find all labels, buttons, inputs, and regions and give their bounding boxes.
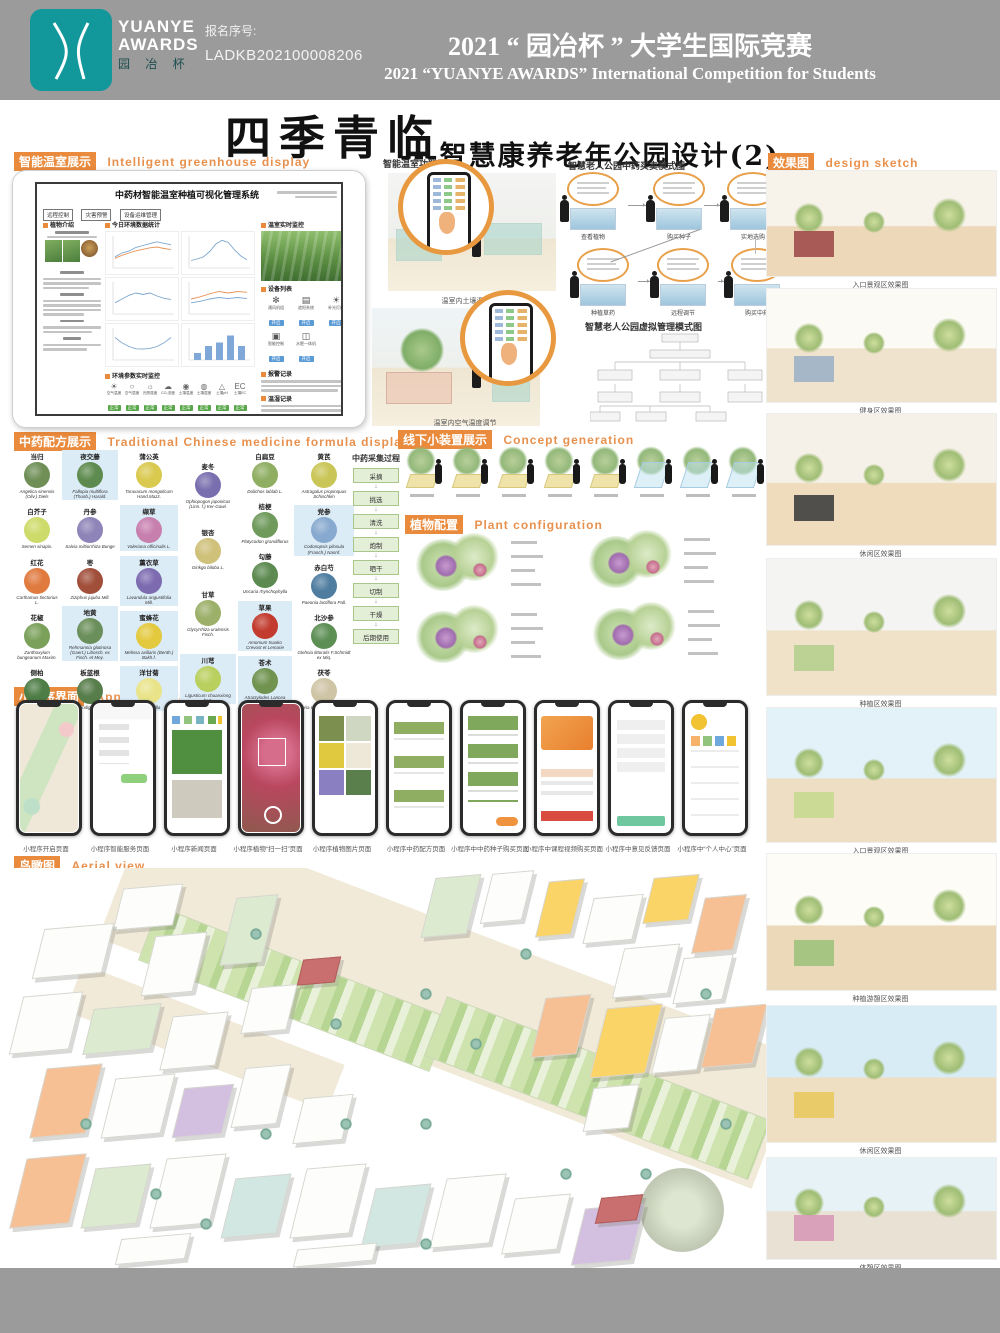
person-figure: [619, 464, 626, 484]
line-chart-2: [181, 231, 255, 275]
plant-photo: [77, 618, 103, 644]
plant-photo: [252, 668, 278, 694]
render-structure: [794, 356, 834, 382]
thought-bubble: [653, 172, 705, 206]
render-illustration: [766, 170, 997, 277]
phone-mockup-chat: [90, 700, 156, 836]
plant-card: 草果Amomum tsaoko Crevost et Lemarie: [238, 601, 292, 651]
person-figure: [711, 464, 718, 484]
phone-mockup-pay: [534, 700, 600, 836]
plant-card: 银杏Ginkgo biloba L.: [180, 526, 236, 571]
render-illustration: [766, 288, 997, 403]
plant-name-cn: 蜜蜂花: [122, 612, 176, 622]
phone-screen-profile: [686, 704, 744, 832]
phone-callout: [398, 159, 494, 255]
env-monitor-title: 环境参数实时监控: [112, 374, 160, 380]
bar-chart: [181, 323, 255, 367]
phone-mockup-news: [164, 700, 230, 836]
tree-icon: [420, 1118, 432, 1130]
concept-vignette: [446, 446, 490, 512]
tree-icon: [590, 446, 620, 476]
render-structure: [794, 940, 834, 966]
plant-card: 红花Carthamus tinctorius L.: [14, 556, 60, 606]
device-on-button: 开启: [299, 356, 314, 362]
plant-photo: [63, 240, 80, 262]
logo-wordmark: YUANYE AWARDS 园 冶 杯: [118, 18, 199, 70]
thought-bubble: [657, 248, 709, 282]
concept-vignette: [492, 446, 536, 512]
plant-photo: [77, 517, 103, 543]
plant-photo: [24, 568, 50, 594]
competition-poster: YUANYE AWARDS 园 冶 杯 报名序号: LADKB202100008…: [0, 0, 1000, 1333]
plant-cluster: [588, 530, 748, 596]
plant-name-cn: 白芥子: [16, 506, 58, 516]
plant-name-cn: 茯苓: [296, 667, 352, 677]
vignette-caption-placeholder: [732, 494, 756, 497]
vignette-caption-placeholder: [686, 494, 710, 497]
trade-step-caption: 远程调节: [652, 308, 714, 317]
building-block: [297, 956, 341, 985]
building-block: [81, 1164, 152, 1229]
plant-photo: [45, 240, 62, 262]
tree-icon: [250, 928, 262, 940]
dashboard-datetime: [277, 189, 337, 200]
elder-figure: [720, 200, 729, 222]
elder-figure: [724, 276, 733, 298]
plant-card: 苍术Atractylodes Lancea (Thunb.) DC.: [238, 656, 292, 706]
building-block: [172, 1084, 234, 1138]
device-on-button: 开启: [269, 320, 284, 326]
phone-screen-seeds: [464, 704, 522, 832]
concept-vignette: [676, 446, 720, 512]
harvest-step: 干燥: [353, 606, 399, 621]
plant-name-latin: Ziziphus jujuba Mill.: [64, 595, 116, 600]
status-normal-badge: 正常: [108, 405, 121, 411]
phone-mockup-seeds: [460, 700, 526, 836]
building-block: [691, 894, 747, 954]
status-normal-badge: 正常: [180, 405, 193, 411]
dashboard-title: 中药材智能温室种植可视化管理系统: [97, 188, 277, 201]
tree-icon: [720, 1118, 732, 1130]
device-item: ☀补光灯组开启: [321, 295, 343, 329]
plant-photo: [195, 600, 221, 626]
building-block: [115, 1233, 191, 1265]
concept-vignette: [400, 446, 444, 512]
plant-name-cn: 夜交藤: [64, 451, 116, 461]
plant-name-latin: Fallopia multiflora (Thunb.) Harald.: [64, 489, 116, 499]
render-card: 种植区效果图: [766, 558, 995, 709]
plant-intro-panel: 植物介绍: [43, 218, 101, 353]
render-card: 健身区效果图: [766, 288, 995, 416]
plant-photo: [252, 562, 278, 588]
tree-icon: [420, 988, 432, 1000]
plant-name-cn: 桔梗: [240, 501, 290, 511]
tcm-plants-grid: 当归Angelica sinensis (Oliv.) Diels白芥子Seme…: [14, 450, 354, 686]
plant-photo: [195, 472, 221, 498]
土壤湿度-icon: ◍: [195, 382, 213, 391]
building-block: [421, 874, 482, 938]
plant-name-latin: Lavandula angustifolia Mill.: [122, 595, 176, 605]
elder-figure: [650, 276, 659, 298]
plant-column: 白扁豆Dolichos lablab L.桔梗Platycodon grandi…: [238, 450, 292, 711]
plant-column: 麦冬Ophiopogon japonicus (Linn. f.) Ker-Ga…: [180, 460, 236, 720]
header-band: YUANYE AWARDS 园 冶 杯 报名序号: LADKB202100008…: [0, 0, 1000, 100]
plant-name-cn: 地黄: [64, 607, 116, 617]
render-caption: 休闲区效果图: [766, 1146, 995, 1156]
harvest-step: 晒干: [353, 560, 399, 575]
render-card: 种植游憩区效果图: [766, 853, 995, 1004]
render-card: 休闲区效果图: [766, 413, 995, 559]
env-param: ☼光照强度正常: [141, 382, 159, 414]
plant-name-cn: 侧柏: [16, 667, 58, 677]
plant-photo: [311, 517, 337, 543]
thought-bubble: [577, 248, 629, 282]
scene-illustration: [570, 208, 616, 230]
phone-mockup-map: [16, 700, 82, 836]
plant-cluster: [592, 602, 752, 668]
thought-bubble: [567, 172, 619, 206]
render-card: 体憩区效果图: [766, 1157, 995, 1273]
plant-card: 川芎Ligusticum chuanxiong hort.: [180, 654, 236, 704]
phone-mockup-formula: [386, 700, 452, 836]
plant-name-cn: 丹参: [64, 506, 116, 516]
device-on-button: 开启: [329, 320, 344, 326]
plant-column: 夜交藤Fallopia multiflora (Thunb.) Harald.丹…: [62, 450, 118, 716]
plant-photo: [195, 538, 221, 564]
tree-icon: [150, 1188, 162, 1200]
plant-card: 蒲公英Taraxacum mongolicum Hand.Mazz.: [120, 450, 178, 500]
planter-box: [406, 474, 439, 488]
status-normal-badge: 正常: [162, 405, 175, 411]
status-normal-badge: 正常: [126, 405, 139, 411]
plant-card: 白芥子Semen sinapis.: [14, 505, 60, 550]
trade-step: 查看植物: [562, 172, 624, 241]
plant-name-latin: Rehmannia glutinosa (Gaert.) Libosch. ex…: [64, 645, 116, 661]
plant-name-cn: 草果: [240, 602, 290, 612]
building-block: [612, 944, 680, 999]
土壤pH-icon: △: [213, 382, 231, 391]
building-block: [501, 1194, 571, 1255]
concept-vignette: [722, 446, 766, 512]
monitor-panel: 温室实时监控 设备列表 ✻通风机组开启▤遮阳系统开启☀补光灯组开启▣智能控制开启…: [261, 218, 343, 414]
空气湿度-icon: ○: [123, 382, 141, 391]
render-caption: 种植游憩区效果图: [766, 994, 995, 1004]
status-normal-badge: 正常: [216, 405, 229, 411]
harvest-step: 后期使用: [353, 629, 399, 644]
person-figure: [665, 464, 672, 484]
土壤EC-icon: EC: [231, 382, 249, 391]
tree-icon: [420, 1238, 432, 1250]
planter-box: [452, 474, 485, 488]
building-block: [429, 1173, 506, 1248]
vignette-caption-placeholder: [640, 494, 664, 497]
line-chart-5: [105, 323, 179, 367]
greenhouse-camera-photo: [261, 231, 343, 281]
plant-name-latin: Platycodon grandiflorus: [240, 539, 290, 544]
concept-vignette: [538, 446, 582, 512]
tree-icon: [330, 1018, 342, 1030]
irrigation-icon: ◫: [291, 331, 321, 341]
render-illustration: [766, 1157, 997, 1260]
dashboard-charts: [105, 231, 255, 367]
render-card: 入口景观区效果图: [766, 707, 995, 856]
phone-screen-news: [168, 704, 226, 832]
plant-name-cn: 当归: [16, 451, 58, 461]
phone-mockup-scan: [238, 700, 304, 836]
plant-name-latin: Uncaria rhynchophylla: [240, 589, 290, 594]
status-normal-badge: 正常: [198, 405, 211, 411]
vignette-caption-placeholder: [594, 494, 618, 497]
device-on-button: 开启: [299, 320, 314, 326]
device-item: ✻通风机组开启: [261, 295, 291, 329]
render-illustration: [766, 853, 997, 991]
plant-column: 当归Angelica sinensis (Oliv.) Diels白芥子Seme…: [14, 450, 60, 722]
光照强度-icon: ☼: [141, 382, 159, 391]
env-param: ☁CO₂浓度正常: [159, 382, 177, 414]
plant-card: 桔梗Platycodon grandiflorus: [238, 500, 292, 545]
render-structure: [794, 1215, 834, 1241]
harvest-step: 切制: [353, 583, 399, 598]
render-illustration: [766, 413, 997, 546]
planter-box: [498, 474, 531, 488]
scene-illustration: [660, 284, 706, 306]
person-figure: [527, 464, 534, 484]
vignette-caption-placeholder: [456, 494, 480, 497]
shade-icon: ▤: [291, 295, 321, 305]
plant-name-latin: Ophiopogon japonicus (Linn. f.) Ker-Gawl…: [182, 499, 234, 509]
render-structure: [794, 792, 834, 818]
plant-intro-title: 植物介绍: [50, 223, 74, 229]
section-greenhouse-header: 智能温室展示 Intelligent greenhouse display: [14, 152, 310, 171]
plant-name-cn: 蒲公英: [122, 451, 176, 461]
yuanye-logo-icon: [30, 9, 112, 91]
plant-name-cn: 枣: [64, 557, 116, 567]
plant-name-latin: Valeriana officinalis L.: [122, 544, 176, 549]
records-title: 温湿记录: [268, 397, 292, 403]
空气温度-icon: ☀: [105, 382, 123, 391]
trade-step-caption: 种植草药: [572, 308, 634, 317]
plant-photo: [77, 568, 103, 594]
env-param: ◉土壤温度正常: [177, 382, 195, 414]
trade-step: 种植草药: [572, 248, 634, 317]
plant-name-latin: Salvia miltiorrhiza Bunge: [64, 544, 116, 549]
render-illustration: [766, 1005, 997, 1143]
plant-photo: [311, 623, 337, 649]
tree-icon: [340, 1118, 352, 1130]
tree-icon: [498, 446, 528, 476]
env-param: ◍土壤湿度正常: [195, 382, 213, 414]
device-list: ✻通风机组开启▤遮阳系统开启☀补光灯组开启▣智能控制开启◫水肥一体机开启: [261, 295, 343, 367]
phone-caption: 小程序中“个人中心”页面: [669, 843, 755, 853]
person-figure: [435, 464, 442, 484]
scene-illustration: [580, 284, 626, 306]
render-illustration: [766, 558, 997, 696]
harvest-step: 炮制: [353, 537, 399, 552]
tree-icon: [80, 1118, 92, 1130]
trade-step-caption: 查看植物: [562, 232, 624, 241]
plant-name-latin: Angelica sinensis (Oliv.) Diels: [16, 489, 58, 499]
phone-mockup-profile: [682, 700, 748, 836]
mgmt-tree-diagram: [590, 332, 770, 429]
building-block: [480, 870, 534, 924]
trade-step: 远程调节: [652, 248, 714, 317]
controller-icon: ▣: [261, 331, 291, 341]
phone-screen-map: [20, 704, 78, 832]
plant-name-cn: 缬草: [122, 506, 176, 516]
harvest-step: 挑选: [353, 491, 399, 506]
alarm-title: 报警记录: [268, 372, 292, 378]
render-structure: [794, 1092, 834, 1118]
vignette-caption-placeholder: [410, 494, 434, 497]
greenhouse-dashboard-tablet: 中药材智能温室种植可视化管理系统 远程控制 灾害预警 设备运维管理 植物介绍: [12, 170, 366, 428]
herb-bowl-photo: [81, 240, 98, 257]
status-normal-badge: 正常: [234, 405, 247, 411]
logo-line3: 园 冶 杯: [118, 58, 199, 71]
plant-name-latin: Melissa axillaris (Benth.) Bakh.f.: [122, 650, 176, 660]
building-block: [582, 894, 643, 944]
plant-card: 当归Angelica sinensis (Oliv.) Diels: [14, 450, 60, 500]
render-structure: [794, 645, 834, 671]
plant-name-latin: Amomum tsaoko Crevost et Lemarie: [240, 640, 290, 650]
plant-card: 薰衣草Lavandula angustifolia Mill.: [120, 556, 178, 606]
render-structure: [794, 231, 834, 257]
daily-data-title: 今日环境数据统计: [112, 223, 160, 229]
building-block: [642, 874, 699, 924]
greenhouse-badge: 智能温室展示: [14, 152, 96, 171]
plant-photo: [24, 517, 50, 543]
phone-mockup-feedback: [608, 700, 674, 836]
tree-icon: [640, 1168, 652, 1180]
trade-flow-title: 智慧老人公园中药买卖模式图: [568, 159, 685, 172]
harvest-step: 清洗: [353, 514, 399, 529]
building-block: [293, 1243, 377, 1268]
line-chart-1: [105, 231, 179, 275]
tree-icon: [452, 446, 482, 476]
phone-screen-formula: [390, 704, 448, 832]
phone-screen-scan: [242, 704, 300, 832]
env-param: ☀空气温度正常: [105, 382, 123, 414]
tree-icon: [520, 948, 532, 960]
building-block: [82, 1003, 161, 1055]
tree-icon: [260, 1128, 272, 1140]
planter-box: [544, 474, 577, 488]
plant-card: 夜交藤Fallopia multiflora (Thunb.) Harald.: [62, 450, 118, 500]
plant-name-cn: 麦冬: [182, 461, 234, 471]
plant-name-cn: 苍术: [240, 657, 290, 667]
footer-band: [0, 1268, 1000, 1333]
tapping-hand-icon: [439, 212, 455, 234]
elder-figure: [646, 200, 655, 222]
plant-photo: [252, 613, 278, 639]
plant-name-latin: Glycyrrhiza uralensis Fisch.: [182, 627, 234, 637]
concept-vignette: [584, 446, 628, 512]
phone-callout: [460, 290, 556, 386]
render-card: 休闲区效果图: [766, 1005, 995, 1156]
devices-title: 设备列表: [268, 287, 292, 293]
building-block: [113, 883, 183, 930]
concept-vignette: [630, 446, 674, 512]
plant-photo: [136, 462, 162, 488]
plant-name-latin: Ginkgo biloba L.: [182, 565, 234, 570]
plant-name-cn: 洋甘菊: [122, 667, 176, 677]
person-figure: [481, 464, 488, 484]
plant-photo: [136, 623, 162, 649]
plant-card: 蜜蜂花Melissa axillaris (Benth.) Bakh.f.: [120, 611, 178, 661]
plant-cluster: [415, 533, 575, 599]
plant-card: 枣Ziziphus jujuba Mill.: [62, 556, 118, 601]
env-param: ○空气湿度正常: [123, 382, 141, 414]
plant-name-cn: 甘草: [182, 589, 234, 599]
building-block: [9, 991, 83, 1054]
elder-figure: [570, 276, 579, 298]
building-block: [9, 1153, 86, 1228]
plant-card: 地黄Rehmannia glutinosa (Gaert.) Libosch. …: [62, 606, 118, 662]
line-chart-3: [105, 277, 179, 321]
planter-box: [590, 474, 623, 488]
plant-name-latin: Taraxacum mongolicum Hand.Mazz.: [122, 489, 176, 499]
plant-photo: [195, 666, 221, 692]
plant-card: 甘草Glycyrrhiza uralensis Fisch.: [180, 588, 236, 638]
phone-screen-feedback: [612, 704, 670, 832]
plant-name-latin: Semen sinapis.: [16, 544, 58, 549]
plant-name-cn: 板蓝根: [64, 667, 116, 677]
plant-card: 缬草Valeriana officinalis L.: [120, 505, 178, 550]
plant-name-cn: 白扁豆: [240, 451, 290, 461]
render-structure: [794, 495, 834, 521]
logo-line2: AWARDS: [118, 36, 199, 54]
plant-name-cn: 薰衣草: [122, 557, 176, 567]
elder-figure: [560, 200, 569, 222]
vignette-caption-placeholder: [502, 494, 526, 497]
phone-screen-chat: [94, 704, 152, 832]
render-illustration: [766, 707, 997, 843]
plant-cluster: [415, 605, 575, 671]
building-block: [29, 1064, 102, 1139]
plant-card: 丹参Salvia miltiorrhiza Bunge: [62, 505, 118, 550]
building-block: [289, 1163, 366, 1238]
section-formula-header: 中药配方展示 Traditional Chinese medicine form…: [14, 432, 410, 451]
func-caption-2: 温室内空气温度调节: [390, 418, 540, 428]
header-title-en: 2021 “YUANYE AWARDS” International Compe…: [280, 64, 980, 84]
tree-icon: [406, 446, 436, 476]
phone-mockup-gallery: [312, 700, 378, 836]
plant-name-latin: Carthamus tinctorius L.: [16, 595, 58, 605]
logo-line1: YUANYE: [118, 18, 199, 36]
土壤温度-icon: ◉: [177, 382, 195, 391]
harvest-step: 采摘: [353, 468, 399, 483]
plant-card: 白扁豆Dolichos lablab L.: [238, 450, 292, 495]
daily-data-panel: 今日环境数据统计 环境参数实时监控 ☀空气温度正常○空气湿度正常☼光照强度正常☁…: [105, 218, 255, 414]
building-block: [535, 878, 585, 937]
trade-step: 购买种子: [648, 172, 710, 241]
plant-name-cn: 红花: [16, 557, 58, 567]
aerial-view-illustration: [0, 868, 766, 1268]
monitor-title: 温室实时监控: [268, 223, 304, 229]
device-on-button: 开启: [269, 356, 284, 362]
CO₂浓度-icon: ☁: [159, 382, 177, 391]
harvest-title: 中药采集过程: [344, 453, 408, 464]
plant-photo: [24, 462, 50, 488]
scene-illustration: [656, 208, 702, 230]
harvest-flow: 中药采集过程 采摘↓挑选↓清洗↓炮制↓晒干↓切制↓干燥↓后期使用: [344, 453, 408, 644]
tree-icon: [470, 1038, 482, 1050]
plant-photo: [252, 512, 278, 538]
plant-photo: [136, 568, 162, 594]
plant-name-latin: Glehnia littoralis F.Schmidt ex Miq.: [296, 650, 352, 660]
plant-photo: [311, 462, 337, 488]
air-temp-scene: [372, 308, 540, 426]
dashboard-screen: 中药材智能温室种植可视化管理系统 远程控制 灾害预警 设备运维管理 植物介绍: [35, 182, 343, 416]
